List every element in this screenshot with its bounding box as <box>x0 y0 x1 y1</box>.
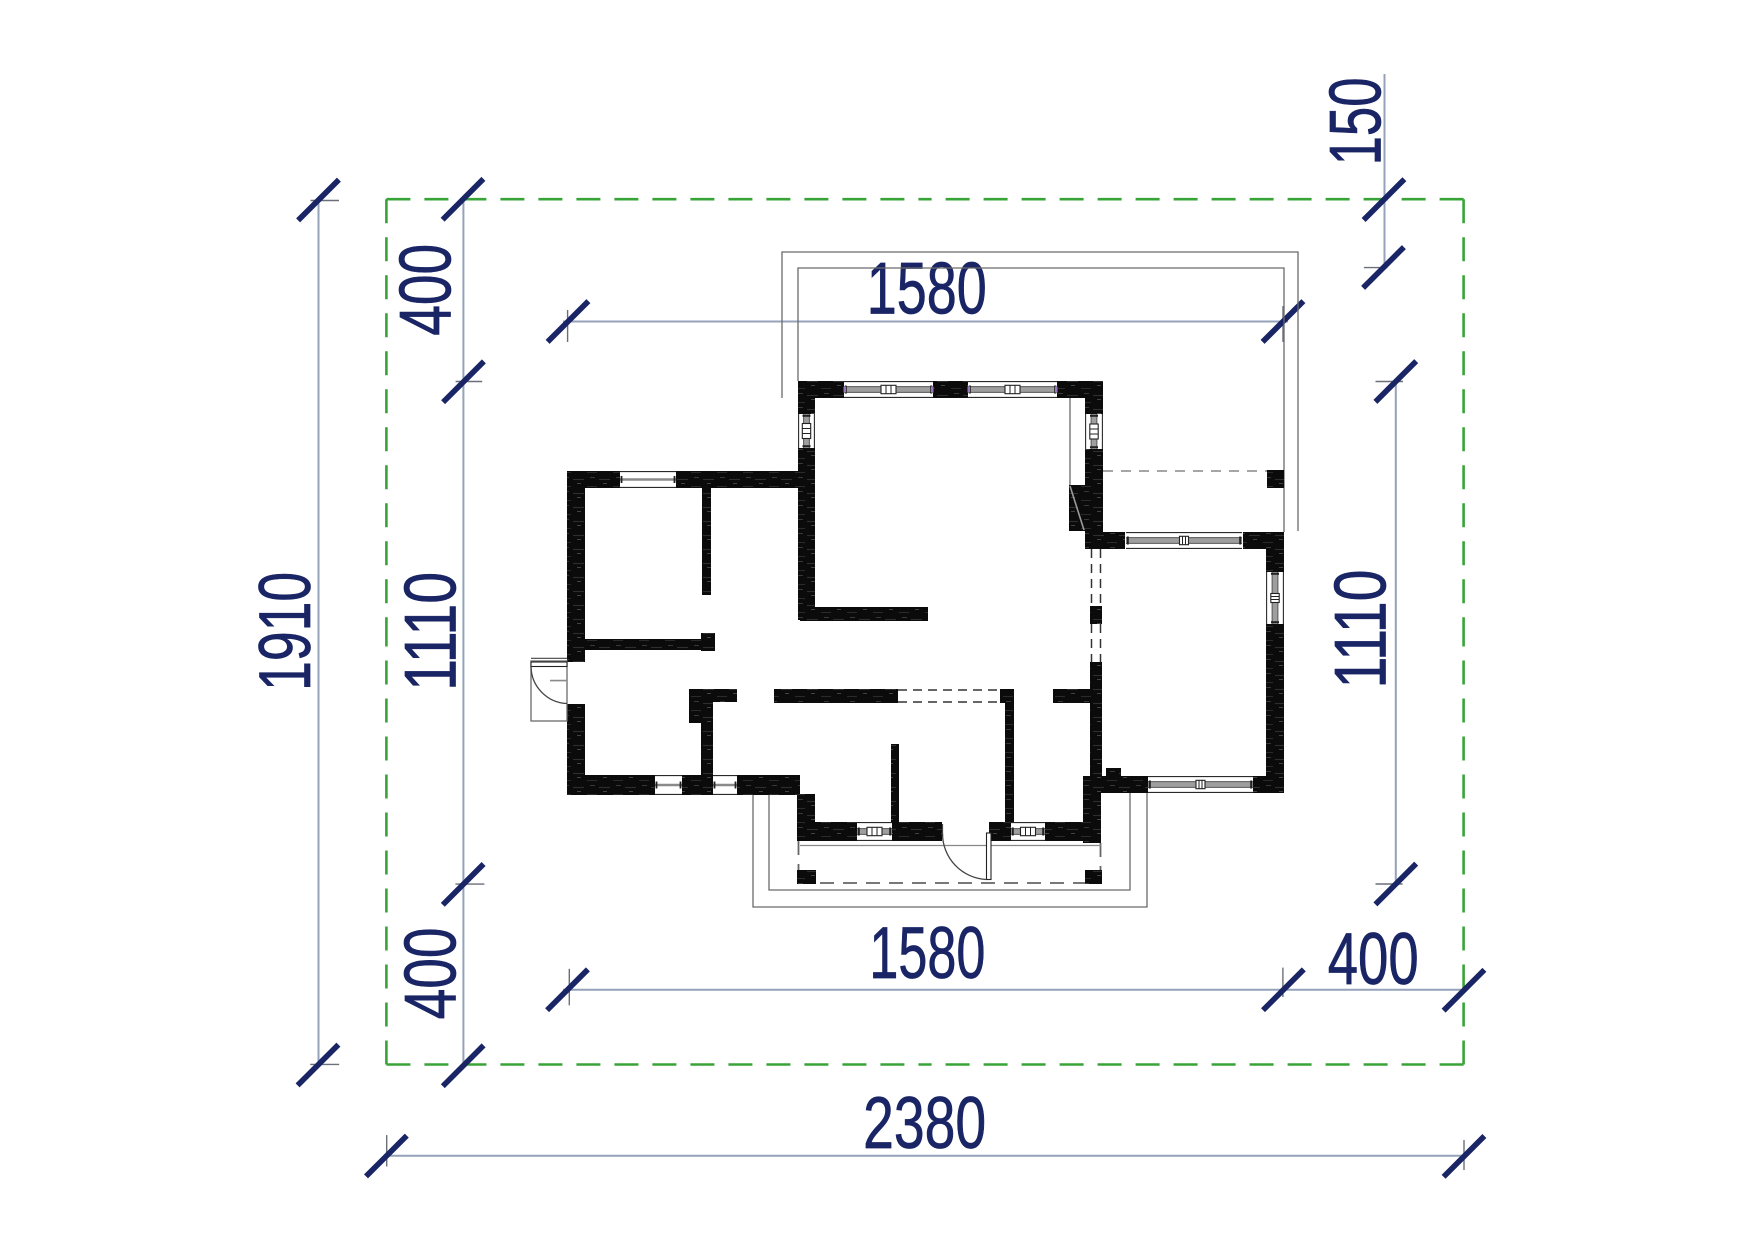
svg-text:400: 400 <box>385 244 466 336</box>
svg-text:1580: 1580 <box>867 248 987 329</box>
svg-text:1910: 1910 <box>245 572 326 691</box>
svg-text:2380: 2380 <box>863 1083 986 1164</box>
svg-text:1110: 1110 <box>1321 570 1402 689</box>
svg-text:1110: 1110 <box>391 572 472 691</box>
svg-text:400: 400 <box>390 927 471 1019</box>
svg-text:150: 150 <box>1315 77 1396 165</box>
svg-text:1580: 1580 <box>869 913 985 994</box>
svg-text:400: 400 <box>1328 919 1419 1000</box>
